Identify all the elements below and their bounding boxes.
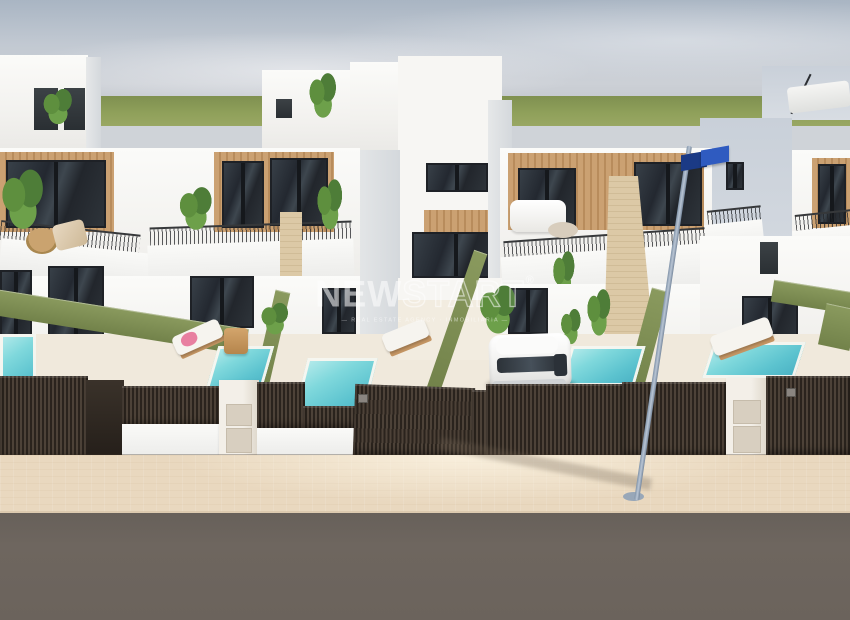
utility-panel [733,426,761,453]
property-render: NEWSTART® — REAL ESTATE AGENCY · INMOBIL… [0,0,850,620]
road [0,513,850,620]
watermark-brand: NEWSTART® [273,275,577,312]
balcony-plant [316,178,344,232]
wooden-stool [224,328,248,354]
right-house-small-window [726,162,744,190]
sidewalk [0,455,850,515]
privacy-fence [122,386,220,428]
right-house-doorway [760,242,778,274]
watermark-brand-outline: START [402,272,524,315]
car-roof [496,336,559,355]
watermark-tagline: — REAL ESTATE AGENCY · INMOBILIARIA — [341,317,508,323]
privacy-fence [622,382,728,458]
balcony-plant [0,168,46,232]
rooftop-plant [308,72,338,120]
utility-panel [226,428,252,453]
privacy-fence [766,376,850,456]
rooftop-plant [42,88,74,126]
second-house-upper-window [222,161,264,228]
gate-keypad [358,394,368,403]
watermark: NEWSTART® — REAL ESTATE AGENCY · INMOBIL… [273,276,577,328]
car-windshield [497,356,559,373]
privacy-fence [257,382,305,430]
balcony-plant [178,186,214,232]
utility-panel [226,404,252,426]
utility-panel [733,400,761,424]
third-house-upper-window [634,162,702,226]
rooftop-left-side-face [86,57,101,155]
watermark-brand-solid: NEW [315,272,402,315]
potted-plant [586,288,612,338]
privacy-fence-gate [0,376,88,462]
car-side-window [554,354,568,376]
balcony-table [548,222,578,238]
center-house-wood-beam [424,210,494,232]
center-house-window [426,163,488,192]
gate-keypad [786,388,796,397]
solid-gate-panel [86,380,124,460]
registered-trademark-icon: ® [526,274,535,286]
rooftop-window [276,99,292,118]
